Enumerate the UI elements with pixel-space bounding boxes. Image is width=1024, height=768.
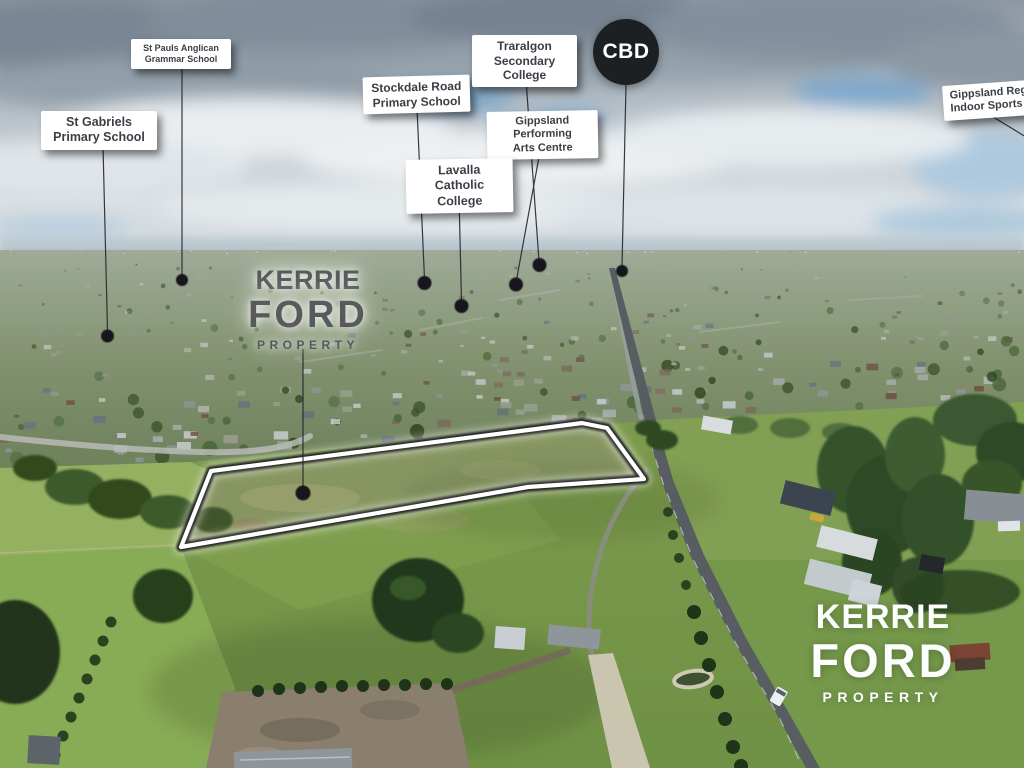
label-stockdale-road-primary-school: Stockdale Road Primary School	[363, 75, 471, 115]
label-traralgon-secondary-college: Traralgon Secondary College	[472, 35, 577, 87]
label-line: Arts Centre	[494, 141, 591, 156]
brand-line-kerrie: KERRIE	[234, 267, 382, 294]
label-line: Traralgon	[479, 39, 570, 54]
cbd-badge: CBD	[593, 19, 659, 85]
label-st-pauls-anglican-grammar-school: St Pauls Anglican Grammar School	[131, 39, 231, 69]
brand-line-ford: FORD	[234, 296, 382, 334]
label-line: Secondary College	[479, 54, 570, 83]
label-st-gabriels-primary-school: St Gabriels Primary School	[41, 111, 157, 150]
kerrie-ford-watermark-bottom-right: KERRIE FORD PROPERTY	[797, 600, 969, 704]
label-line: Primary School	[48, 130, 150, 145]
brand-line-property: PROPERTY	[797, 690, 969, 704]
kerrie-ford-watermark-center: KERRIE FORD PROPERTY	[234, 267, 382, 351]
brand-line-ford: FORD	[797, 637, 969, 684]
brand-line-kerrie: KERRIE	[797, 600, 969, 634]
label-line: Gippsland Performing	[494, 114, 591, 143]
label-line: Catholic College	[413, 177, 507, 209]
label-line: Grammar School	[138, 54, 224, 65]
label-line: St Gabriels	[48, 115, 150, 130]
label-lavalla-catholic-college: Lavalla Catholic College	[406, 158, 514, 214]
label-line: St Pauls Anglican	[138, 43, 224, 54]
label-line: Primary School	[370, 93, 463, 110]
aerial-marketing-photo: KERRIE FORD PROPERTY KERRIE FORD PROPERT…	[0, 0, 1024, 768]
brand-line-property: PROPERTY	[234, 339, 382, 351]
label-line: Lavalla	[413, 162, 506, 179]
label-gippsland-performing-arts-centre: Gippsland Performing Arts Centre	[487, 110, 599, 160]
